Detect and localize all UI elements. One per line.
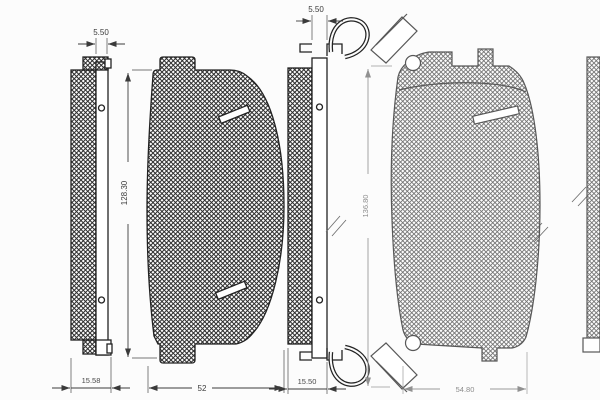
- pad2-bottom-spring-clip: [331, 347, 368, 385]
- pad2-top-hook: [300, 44, 312, 52]
- pad2-bottom-hook: [300, 352, 312, 360]
- pad2-side-view: [288, 19, 368, 384]
- pad2-front-view: [371, 14, 540, 392]
- dim-label-pad2-plate-thickness: 5.50: [308, 5, 324, 14]
- pad1-top-tab-notch: [105, 59, 111, 68]
- dim-label-pad2-length: 136.80: [361, 195, 370, 218]
- pad2-front-outline: [391, 49, 540, 361]
- pad1-top-tab: [83, 57, 108, 70]
- dim-label-pad1-total-thickness: 15.58: [82, 376, 101, 385]
- pad2-plate-hole-bottom: [317, 297, 323, 303]
- pad1-friction-material-side: [71, 70, 96, 340]
- pad2-partial-foot: [583, 338, 600, 352]
- pad2-plate-hole-top: [317, 104, 323, 110]
- technical-drawing-sheet: 5.50 15.58 128.30 52: [0, 0, 600, 400]
- pad2-partial-strip: [587, 57, 600, 338]
- dim-pad2-length: 136.80: [361, 66, 392, 387]
- dim-pad1-total-thickness: 15.58: [52, 357, 130, 393]
- pad2-friction-material-side: [288, 68, 312, 344]
- dim-label-pad2-total-thickness: 15.50: [298, 377, 317, 386]
- pad1-side-view: [71, 57, 112, 355]
- dim-label-pad2-width: 54.80: [456, 385, 475, 394]
- dim-label-pad1-plate-thickness: 5.50: [93, 28, 109, 37]
- dim-label-pad1-length: 128.30: [120, 180, 129, 205]
- pad2-partial-side-view: [583, 57, 600, 352]
- dim-pad2-width: 54.80: [403, 352, 527, 394]
- pad2-top-spring-clip: [331, 19, 368, 57]
- pad2-backing-plate-side: [312, 58, 327, 358]
- pad1-bottom-foot-notch: [107, 344, 112, 353]
- dim-pad2-plate-thickness: 5.50: [296, 5, 343, 40]
- pad1-plate-hole-bottom: [99, 297, 105, 303]
- brake-pad-drawing: 5.50 15.58 128.30 52: [0, 0, 600, 400]
- pad1-plate-hole-top: [99, 105, 105, 111]
- pad1-bottom-tab-hatch: [83, 340, 96, 354]
- dim-label-pad1-width: 52: [198, 384, 207, 393]
- dim-pad1-plate-thickness: 5.50: [78, 28, 125, 54]
- pad1-front-view: [147, 57, 284, 363]
- pad1-front-outline: [147, 57, 284, 363]
- pad2-sensor-hole-bottom: [406, 336, 421, 351]
- pad2-sensor-hole-top: [406, 56, 421, 71]
